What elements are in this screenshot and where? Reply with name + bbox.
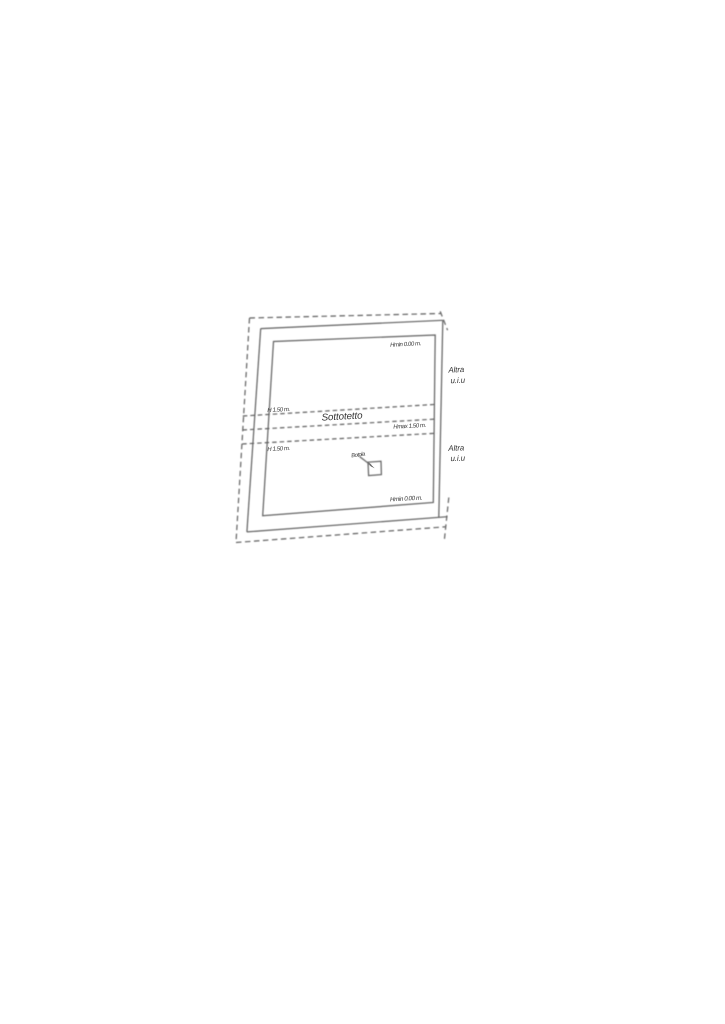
svg-text:Botola: Botola xyxy=(351,452,366,460)
svg-text:Hmax 1.50 m.: Hmax 1.50 m. xyxy=(393,423,426,431)
svg-text:Sottotetto: Sottotetto xyxy=(321,410,363,423)
svg-text:u.i.u: u.i.u xyxy=(450,454,465,464)
svg-text:Altra: Altra xyxy=(447,443,465,453)
svg-text:Hmin 0.00 m.: Hmin 0.00 m. xyxy=(390,495,422,504)
svg-text:Hmin 0.00 m.: Hmin 0.00 m. xyxy=(390,341,421,349)
svg-text:H 1.50 m.: H 1.50 m. xyxy=(267,407,290,414)
svg-text:H 1.50 m.: H 1.50 m. xyxy=(267,446,290,453)
svg-text:u.i.u: u.i.u xyxy=(450,376,465,386)
svg-text:Altra: Altra xyxy=(447,365,465,375)
